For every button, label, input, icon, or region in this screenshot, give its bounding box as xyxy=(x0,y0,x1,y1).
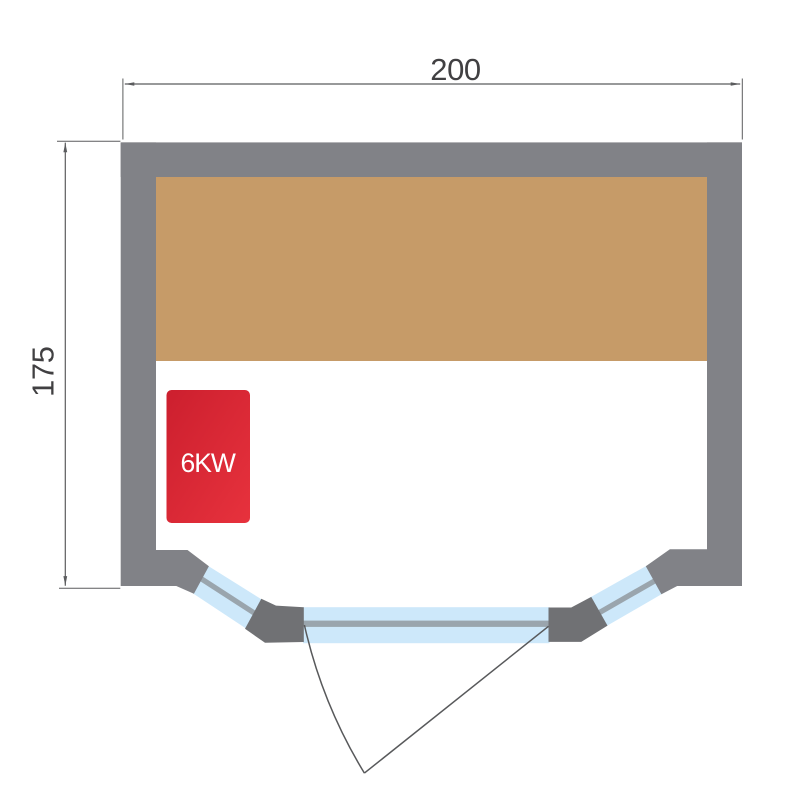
svg-text:200: 200 xyxy=(430,52,481,87)
svg-text:6KW: 6KW xyxy=(180,448,235,478)
svg-text:175: 175 xyxy=(26,346,61,397)
